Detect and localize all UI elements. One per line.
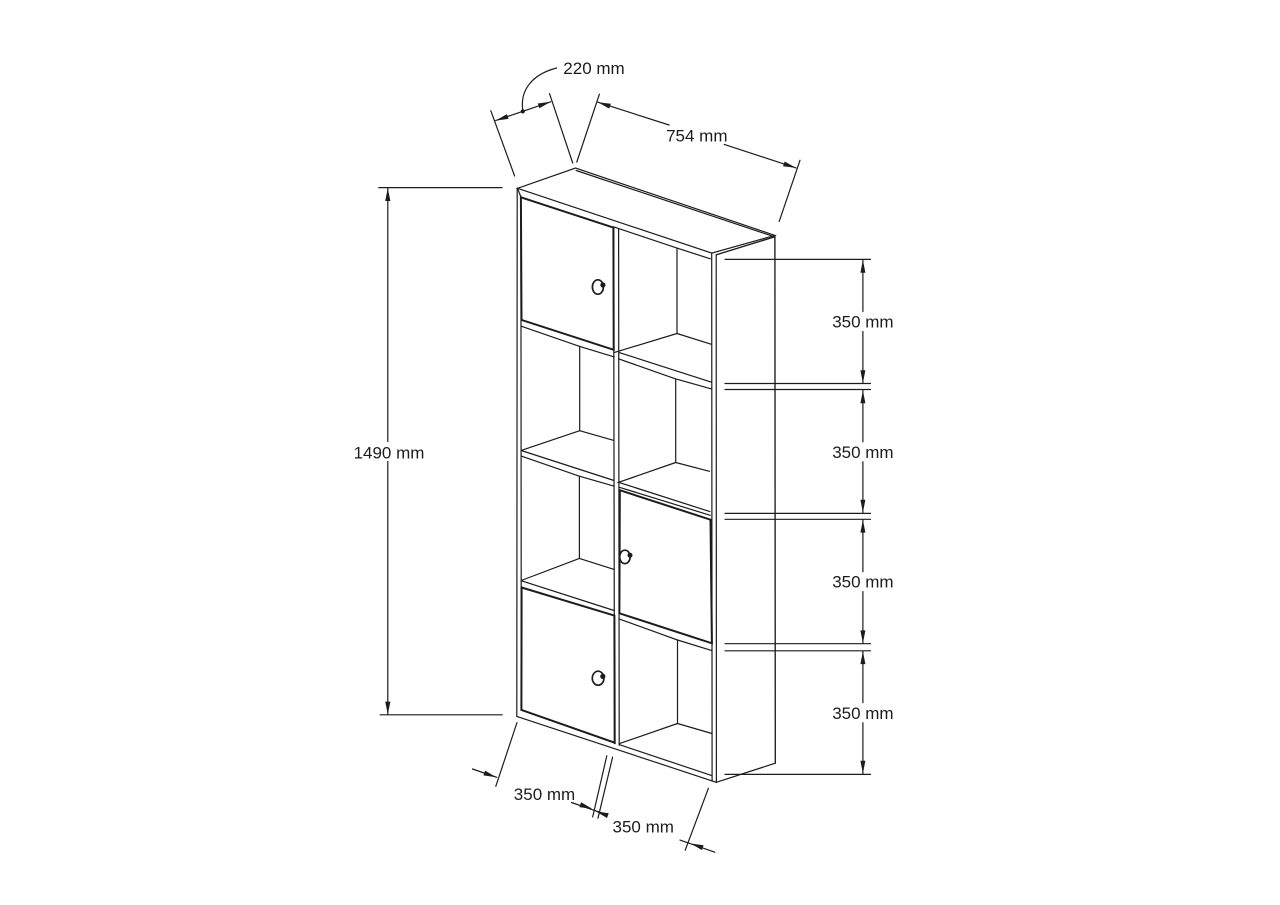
svg-text:754 mm: 754 mm [666, 126, 727, 145]
svg-text:350 mm: 350 mm [832, 573, 893, 592]
svg-text:350 mm: 350 mm [612, 817, 673, 836]
svg-text:350 mm: 350 mm [832, 313, 893, 332]
svg-text:1490 mm: 1490 mm [354, 443, 425, 462]
svg-text:350 mm: 350 mm [514, 785, 575, 804]
svg-text:350 mm: 350 mm [832, 704, 893, 723]
svg-text:220 mm: 220 mm [563, 59, 624, 78]
svg-text:350 mm: 350 mm [832, 443, 893, 462]
